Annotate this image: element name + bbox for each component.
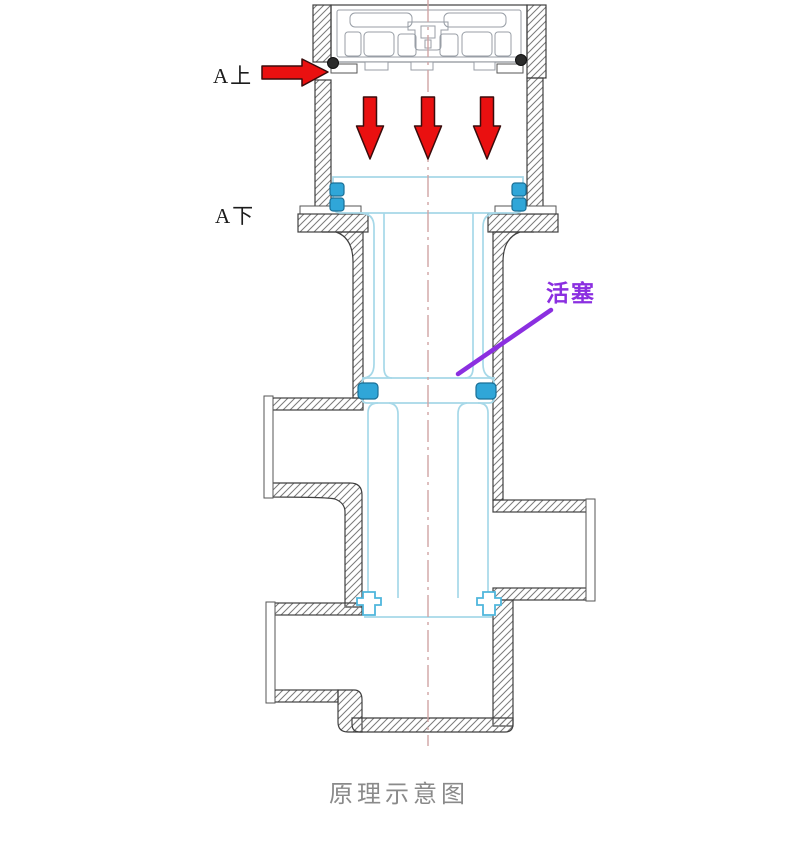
flow-arrows [262, 59, 501, 159]
piston-stem-left-inner [384, 213, 392, 378]
upper-left-port-top-bar [268, 398, 363, 410]
bottom-floor [352, 718, 513, 732]
upper-port-label: A上 [213, 60, 253, 90]
piston-skirt-right-outer [478, 403, 488, 594]
piston-skirt-left-outer [368, 403, 378, 594]
right-port-bottom-bar [493, 588, 592, 600]
valve-schematic-svg [0, 0, 810, 849]
schematic-canvas: A上 A下 活塞 原理示意图 [0, 0, 810, 849]
upper-seal-right-2 [512, 198, 526, 211]
mid-left-wall [322, 232, 363, 398]
right-port-top-bar [493, 500, 592, 512]
mid-seal-right [476, 383, 496, 399]
right-port-mouth [586, 499, 595, 601]
upper-left-port-bottom-wall [268, 483, 362, 607]
lower-left-port-top-bar [270, 603, 362, 615]
lower-left-port-mouth [266, 602, 275, 703]
piston-leader-line [458, 310, 551, 374]
piston-skirt-left-inner [389, 403, 398, 598]
diagram-caption: 原理示意图 [329, 774, 469, 809]
lower-right-wall [493, 600, 513, 726]
flow-arrow-down-icon [357, 97, 384, 159]
cap-left-post [313, 5, 331, 62]
top-cap [313, 5, 546, 78]
piston-skirt-right-inner [458, 403, 467, 598]
upper-left-port-mouth [264, 396, 273, 498]
piston-label: 活塞 [546, 274, 596, 308]
right-screw-icon [516, 55, 527, 66]
flow-arrow-down-icon [474, 97, 501, 159]
upper-seal-right-1 [512, 183, 526, 196]
cap-right-post [527, 5, 546, 78]
flow-arrow-down-icon [415, 97, 442, 159]
upper-left-wall [315, 80, 331, 213]
left-flange [298, 214, 368, 232]
upper-seal-left-2 [330, 198, 344, 211]
lower-port-label: A下 [215, 200, 255, 230]
upper-seal-left-1 [330, 183, 344, 196]
right-flange [488, 214, 558, 232]
upper-left-port [264, 396, 363, 607]
left-screw-icon [328, 58, 339, 69]
lower-left-port-bottom-bar [270, 690, 338, 702]
mid-right-wall [493, 232, 534, 500]
mid-seal-left [358, 383, 378, 399]
right-port [493, 499, 595, 601]
lower-left-port [266, 602, 362, 732]
piston-stem-right-inner [465, 213, 473, 378]
upper-right-wall [527, 78, 543, 214]
